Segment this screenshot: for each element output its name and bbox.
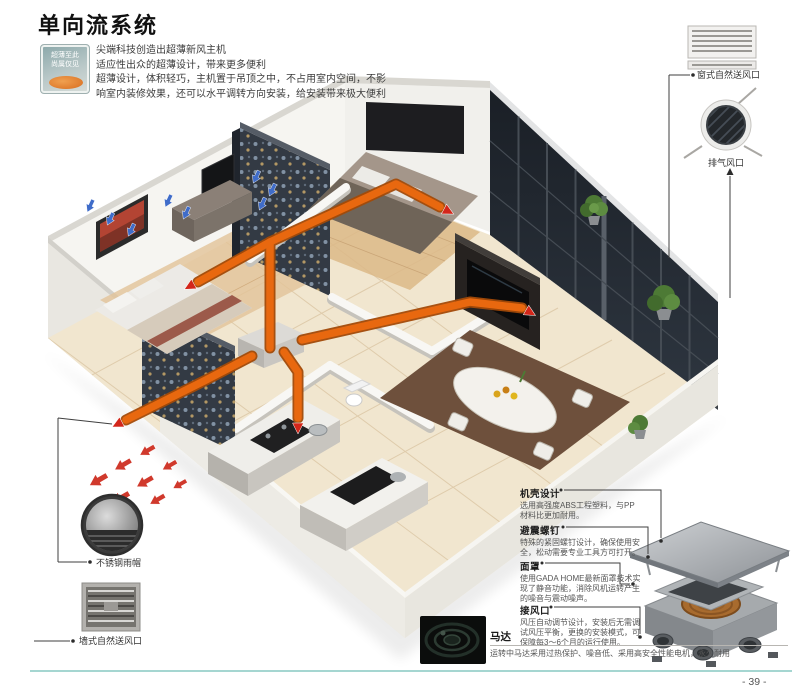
exhaust-vent-label: 排气风口 [708, 157, 744, 168]
intro-line: 超薄设计，体积轻巧，主机置于吊顶之中，不占用室内空间，不影 [96, 73, 448, 88]
page-number: - 39 - [742, 676, 767, 688]
page-title: 单向流系统 [38, 8, 158, 40]
window-vent-label: 窗式自然送风口 [697, 69, 760, 80]
feature-title: 面罩 [520, 559, 642, 573]
motor-title: 马达 [490, 629, 511, 644]
feature-desc: 选用高强度ABS工程塑料，与PP材料比更加耐用。 [520, 501, 642, 521]
feature-desc: 风压自动调节设计，安装后无需调试风压平衡，更换的安装模式，可保障每3～6个月的运… [520, 618, 642, 648]
badge-product-thumb [49, 76, 83, 89]
page: { "page": {"title": "单向流系统", "page_numbe… [0, 0, 800, 692]
badge-line-2: 尚属仅见 [41, 60, 89, 69]
intro-paragraph: 尖端科技创造出超薄新风主机 适应性出众的超薄设计，带来更多便利 超薄设计，体积轻… [96, 44, 448, 102]
wall-vent-label: 墙式自然送风口 [79, 635, 142, 646]
wall-vent-photo [82, 583, 140, 631]
exhaust-vent-photo [684, 88, 762, 158]
feature-desc: 使用GADA HOME最新面罩技术实现了静音功能，消除风机运转产生的噪音与震动噪… [520, 574, 642, 604]
feature-air-port: 接风口 风压自动调节设计，安装后无需调试风压平衡，更换的安装模式，可保障每3～6… [520, 603, 642, 648]
feature-cover: 面罩 使用GADA HOME最新面罩技术实现了静音功能，消除风机运转产生的噪音与… [520, 559, 642, 604]
motor-divider [490, 645, 788, 646]
headboard-panel [366, 102, 464, 154]
feature-screws: 避震螺钉 特殊的紧固螺钉设计，确保使用安全，松动需要专业工具方可打开。 [520, 523, 642, 558]
footer-rule [30, 670, 792, 672]
intro-line: 尖端科技创造出超薄新风主机 [96, 44, 448, 59]
feature-desc: 特殊的紧固螺钉设计，确保使用安全，松动需要专业工具方可打开。 [520, 538, 642, 558]
intro-line: 适应性出众的超薄设计，带来更多便利 [96, 59, 448, 74]
badge-line-1: 超薄至此 [41, 51, 89, 60]
feature-title: 避震螺钉 [520, 523, 642, 537]
feature-housing: 机壳设计 选用高强度ABS工程塑料，与PP材料比更加耐用。 [520, 486, 642, 521]
feature-title: 接风口 [520, 603, 642, 617]
rain-cap-label: 不锈钢雨帽 [96, 557, 141, 568]
window-vent-photo [688, 26, 756, 69]
thin-design-badge: 超薄至此 尚属仅见 [40, 44, 90, 94]
apartment-illustration: 窗式自然送风口 排气风口 不锈钢雨帽 墙式自然送风口 [0, 0, 800, 692]
motor-desc: 运转中马达采用过热保护、噪音低、采用高安全性能电机，永久耐用 [490, 649, 792, 659]
motor-photo [420, 616, 486, 664]
feature-title: 机壳设计 [520, 486, 642, 500]
rain-cap-photo [82, 495, 142, 555]
intro-line: 响室内装修效果，还可以水平调转方向安装，给安装带来极大便利 [96, 88, 448, 103]
